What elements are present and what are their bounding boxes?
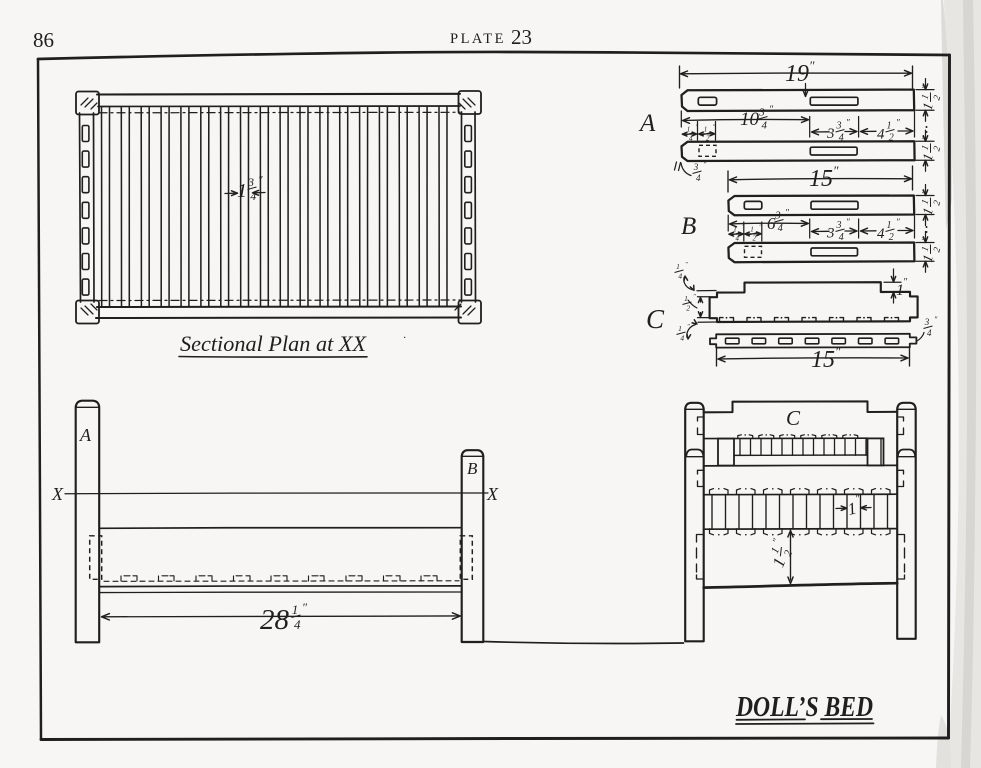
svg-text:4: 4 [761, 120, 767, 132]
svg-text:1: 1 [292, 602, 299, 617]
svg-text:4: 4 [680, 334, 684, 343]
svg-text:1: 1 [676, 262, 680, 271]
svg-text:X: X [486, 484, 499, 504]
svg-text:1: 1 [704, 125, 708, 133]
svg-text:4: 4 [877, 226, 885, 242]
svg-text:3: 3 [247, 175, 254, 189]
svg-text:1: 1 [237, 180, 247, 202]
svg-text:86: 86 [33, 28, 54, 52]
svg-text:15: 15 [809, 166, 833, 192]
svg-text:″: ″ [685, 261, 688, 268]
svg-text:″: ″ [809, 58, 815, 73]
svg-text:″: ″ [258, 174, 263, 186]
svg-text:28: 28 [260, 604, 290, 636]
svg-text:″: ″ [693, 293, 696, 300]
svg-text:A: A [79, 425, 92, 445]
svg-text:1: 1 [750, 225, 754, 233]
svg-text:1: 1 [684, 294, 688, 303]
svg-text:″: ″ [846, 217, 850, 227]
svg-text:4: 4 [696, 173, 701, 183]
svg-text:C: C [786, 406, 801, 430]
svg-text:2: 2 [752, 235, 756, 243]
svg-text:4: 4 [250, 189, 256, 203]
svg-text:C: C [646, 304, 665, 334]
svg-text:″: ″ [833, 163, 839, 178]
svg-text:B: B [467, 459, 478, 478]
svg-text:3: 3 [826, 126, 835, 142]
svg-text:·: · [403, 330, 406, 344]
svg-text:″: ″ [846, 118, 850, 128]
svg-text:4: 4 [778, 223, 784, 234]
svg-text:3: 3 [758, 106, 765, 118]
svg-text:B: B [681, 213, 696, 240]
svg-text:1: 1 [887, 220, 892, 231]
svg-text:3: 3 [836, 220, 842, 231]
svg-text:PLATE: PLATE [450, 31, 506, 47]
svg-text:1: 1 [887, 120, 892, 131]
svg-text:″: ″ [687, 323, 690, 330]
svg-text:3: 3 [924, 317, 930, 327]
svg-text:10: 10 [740, 109, 760, 130]
svg-text:″: ″ [896, 217, 900, 227]
svg-text:3: 3 [836, 120, 842, 131]
svg-text:1: 1 [733, 225, 737, 233]
svg-text:1: 1 [678, 324, 682, 333]
svg-text:2: 2 [889, 232, 894, 243]
svg-text:4: 4 [735, 235, 739, 243]
svg-text:3: 3 [774, 210, 780, 221]
svg-text:2: 2 [686, 304, 690, 313]
svg-text:X: X [51, 484, 64, 504]
svg-text:3: 3 [826, 226, 835, 242]
svg-text:23: 23 [511, 25, 532, 49]
svg-text:1: 1 [687, 125, 691, 133]
svg-text:4: 4 [294, 617, 301, 632]
svg-text:A: A [638, 110, 656, 137]
svg-text:″: ″ [835, 344, 841, 359]
svg-text:3: 3 [693, 162, 699, 172]
svg-text:15: 15 [811, 347, 835, 373]
svg-text:4: 4 [839, 232, 844, 243]
svg-text:4: 4 [877, 127, 885, 143]
svg-text:″: ″ [896, 118, 900, 128]
svg-text:Sectional Plan at XX: Sectional Plan at XX [180, 331, 368, 356]
svg-text:4: 4 [678, 272, 682, 281]
svg-text:4: 4 [927, 328, 932, 338]
